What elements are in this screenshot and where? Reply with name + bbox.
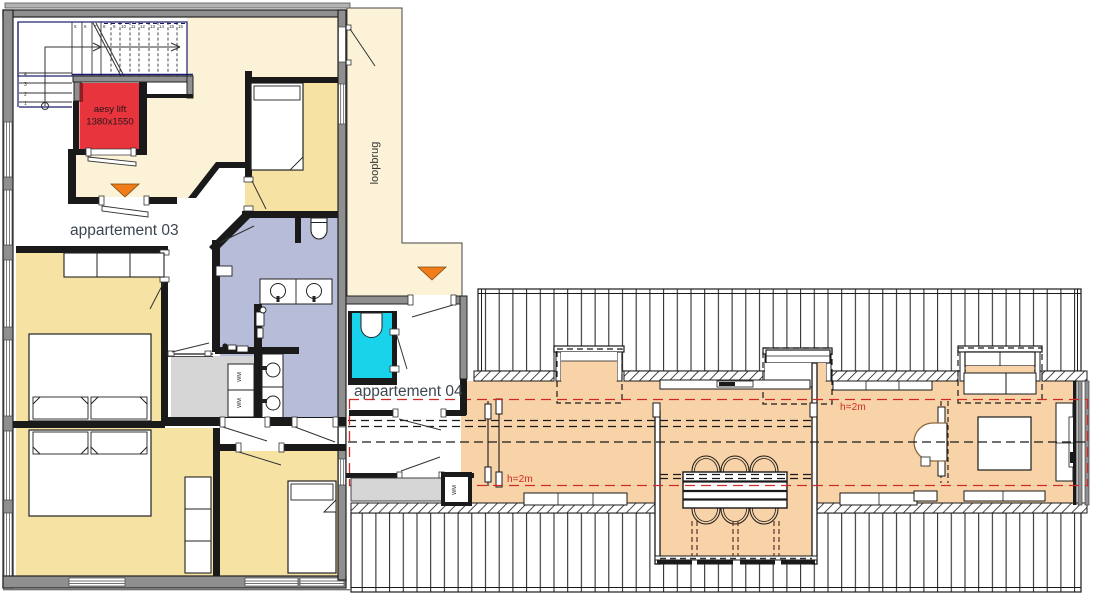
svg-text:WM: WM xyxy=(237,398,243,408)
svg-text:16: 16 xyxy=(178,24,184,29)
svg-text:WM: WM xyxy=(237,372,243,382)
svg-text:1: 1 xyxy=(24,101,27,107)
svg-text:h=2m: h=2m xyxy=(507,474,533,485)
svg-text:3: 3 xyxy=(24,82,27,88)
svg-text:4: 4 xyxy=(24,72,27,78)
svg-text:appartement 03: appartement 03 xyxy=(70,222,179,239)
svg-text:2: 2 xyxy=(24,92,27,98)
svg-text:11: 11 xyxy=(131,24,136,29)
svg-text:WM: WM xyxy=(452,485,458,495)
svg-text:10: 10 xyxy=(121,24,127,29)
svg-text:13: 13 xyxy=(150,24,156,29)
svg-text:1380x1550: 1380x1550 xyxy=(86,117,133,128)
svg-text:h=2m: h=2m xyxy=(840,402,866,413)
svg-text:14: 14 xyxy=(159,24,165,29)
svg-text:15: 15 xyxy=(169,24,175,29)
svg-text:appartement 04: appartement 04 xyxy=(354,383,463,400)
svg-text:12: 12 xyxy=(140,24,146,29)
svg-text:loopbrug: loopbrug xyxy=(369,142,381,185)
svg-text:aesy lift: aesy lift xyxy=(94,104,127,115)
